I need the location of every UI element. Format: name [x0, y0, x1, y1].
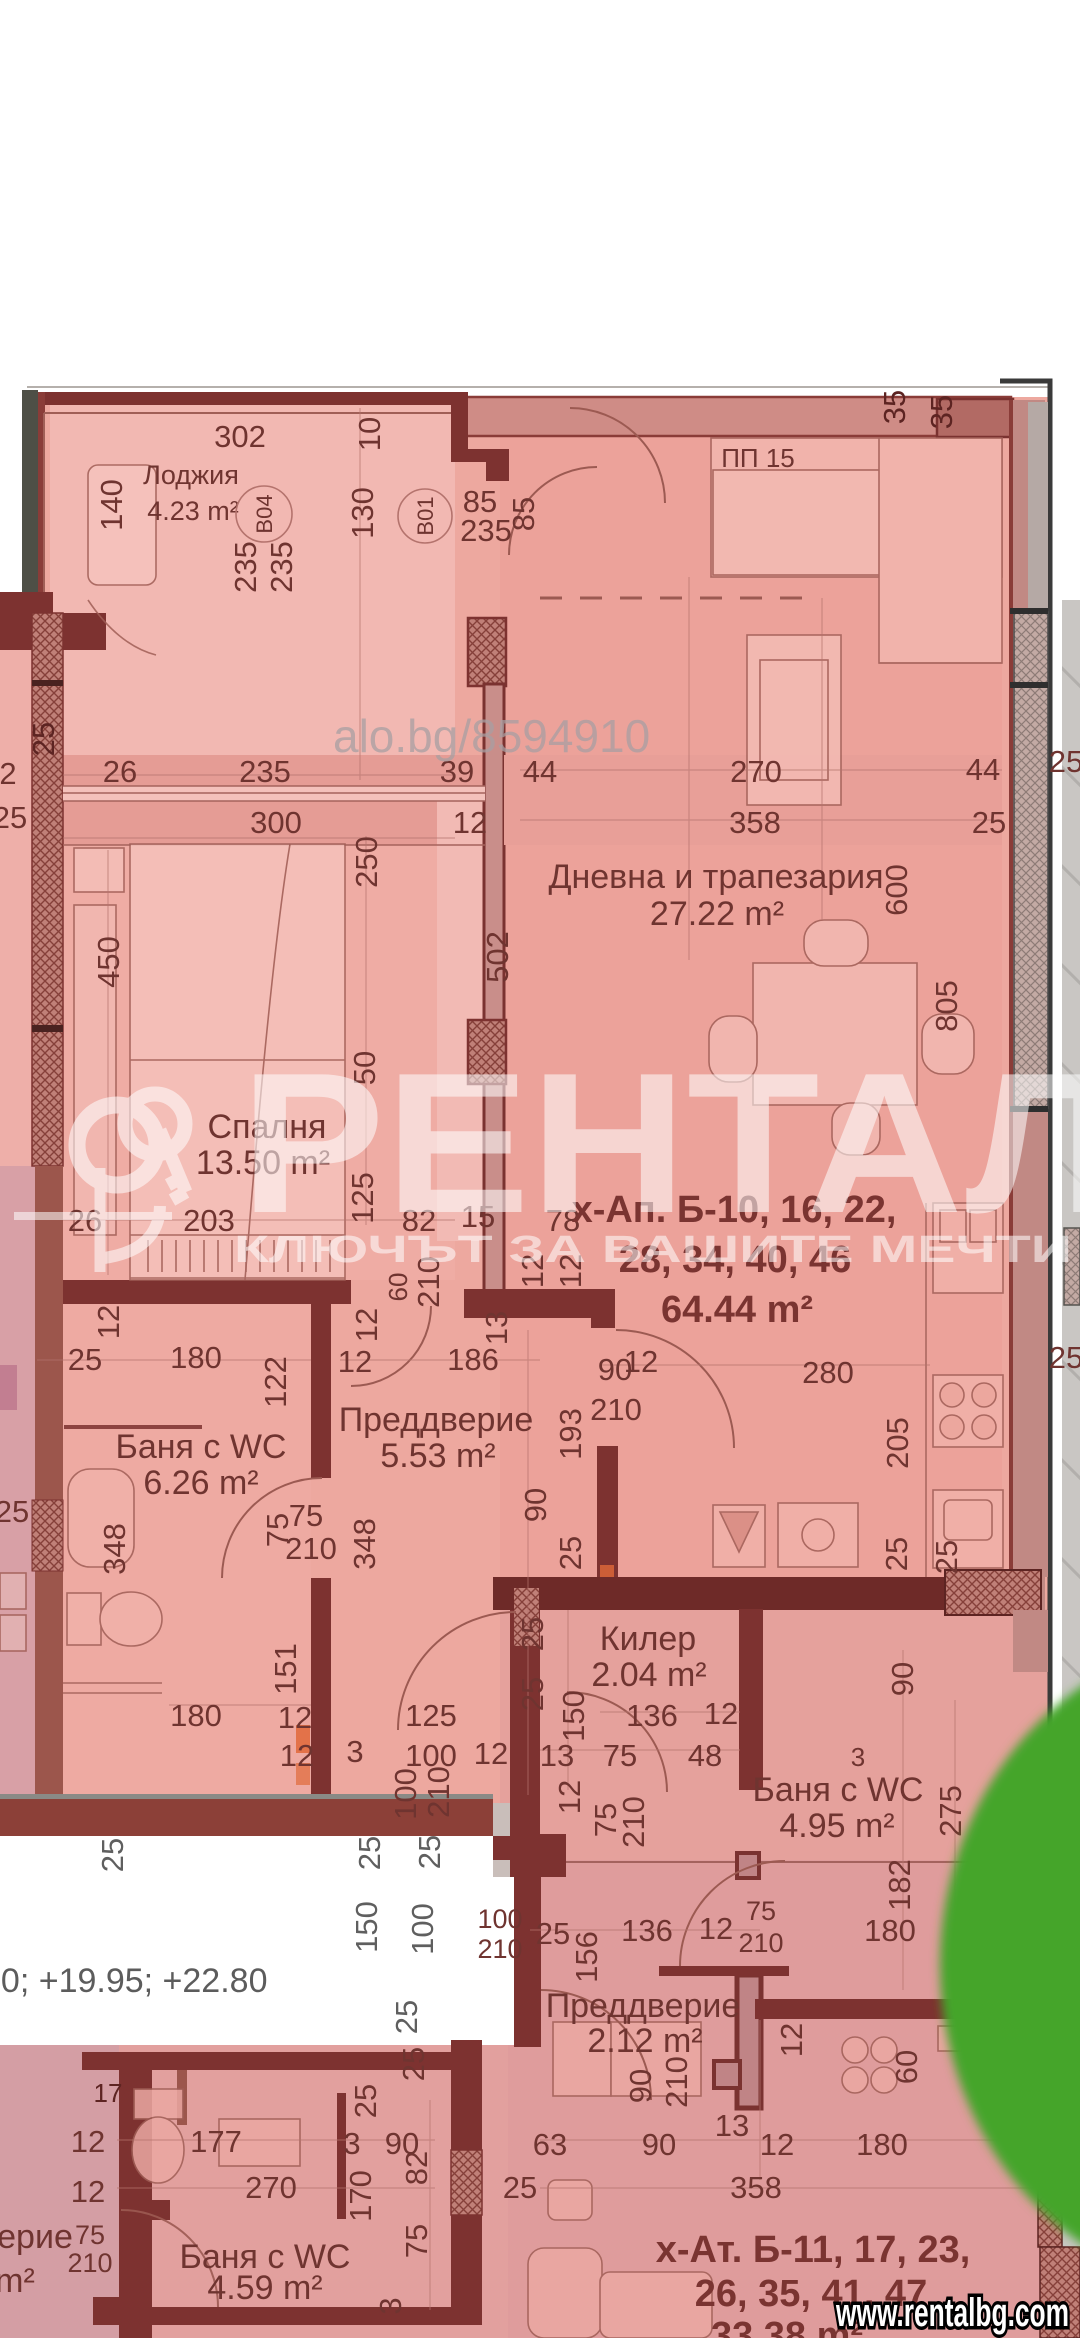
- svg-text:25: 25: [515, 1617, 550, 1651]
- svg-text:186: 186: [447, 1342, 499, 1377]
- svg-text:502: 502: [480, 931, 515, 983]
- svg-text:450: 450: [91, 936, 126, 988]
- svg-text:12: 12: [278, 1700, 312, 1735]
- svg-text:90: 90: [885, 1662, 920, 1696]
- svg-text:75: 75: [399, 2224, 434, 2258]
- svg-text:3: 3: [373, 2297, 408, 2314]
- svg-text:270: 270: [730, 754, 782, 789]
- svg-text:85: 85: [506, 497, 541, 531]
- svg-text:210: 210: [659, 2056, 694, 2108]
- svg-text:270: 270: [245, 2170, 297, 2205]
- svg-text:2: 2: [0, 756, 17, 791]
- svg-text:25: 25: [389, 2000, 424, 2034]
- svg-text:25: 25: [412, 1835, 447, 1869]
- svg-text:140: 140: [94, 479, 129, 531]
- svg-text:Килер: Килер: [600, 1620, 696, 1658]
- svg-text:25: 25: [0, 1494, 29, 1529]
- svg-text:90: 90: [623, 2069, 658, 2103]
- svg-text:27.22 m²: 27.22 m²: [650, 895, 784, 933]
- svg-text:210: 210: [616, 1796, 651, 1848]
- svg-text:25: 25: [352, 1836, 387, 1870]
- svg-text:Преддверие: Преддверие: [546, 1987, 741, 2025]
- svg-text:12: 12: [453, 805, 487, 840]
- svg-text:10; +19.95; +22.80: 10; +19.95; +22.80: [0, 1962, 267, 2000]
- svg-text:125: 125: [405, 1698, 457, 1733]
- svg-text:25: 25: [503, 2170, 537, 2205]
- svg-text:13: 13: [715, 2108, 749, 2143]
- svg-text:25: 25: [515, 1677, 550, 1711]
- svg-text:12: 12: [704, 1696, 738, 1731]
- svg-text:100: 100: [477, 1904, 522, 1934]
- svg-text:12: 12: [760, 2127, 794, 2162]
- svg-text:302: 302: [214, 419, 266, 454]
- svg-text:75: 75: [75, 2220, 105, 2250]
- svg-text:60: 60: [383, 1273, 413, 1302]
- svg-text:12: 12: [71, 2174, 105, 2209]
- svg-text:100: 100: [405, 1903, 440, 1955]
- svg-text:25: 25: [929, 1540, 964, 1574]
- svg-text:25: 25: [0, 800, 27, 835]
- svg-text:3: 3: [343, 2126, 360, 2161]
- svg-text:Баня с WC: Баня с WC: [753, 1771, 924, 1809]
- svg-text:6.26 m²: 6.26 m²: [143, 1464, 258, 1502]
- svg-text:44: 44: [966, 752, 1000, 787]
- svg-text:3: 3: [346, 1734, 363, 1769]
- svg-text:2.04 m²: 2.04 m²: [591, 1656, 706, 1694]
- svg-text:182: 182: [882, 1859, 917, 1911]
- svg-text:600: 600: [879, 864, 914, 916]
- svg-text:348: 348: [347, 1518, 382, 1570]
- svg-text:12: 12: [349, 1308, 384, 1342]
- svg-text:275: 275: [933, 1785, 968, 1837]
- svg-text:4.59 m²: 4.59 m²: [207, 2269, 322, 2307]
- svg-text:5.53 m²: 5.53 m²: [380, 1437, 495, 1475]
- svg-text:90: 90: [518, 1488, 553, 1522]
- svg-text:210: 210: [590, 1392, 642, 1427]
- svg-text:156: 156: [569, 1931, 604, 1983]
- svg-text:12: 12: [474, 1736, 508, 1771]
- svg-text:25: 25: [972, 805, 1006, 840]
- svg-text:210: 210: [67, 2248, 112, 2278]
- svg-text:358: 358: [729, 805, 781, 840]
- svg-text:25: 25: [396, 2047, 431, 2081]
- svg-text:х-Ат. Б-11, 17, 23,: х-Ат. Б-11, 17, 23,: [656, 2229, 971, 2271]
- svg-text:130: 130: [345, 487, 380, 539]
- svg-text:ПП 15: ПП 15: [721, 443, 795, 473]
- svg-text:12: 12: [91, 1305, 126, 1339]
- svg-text:235: 235: [460, 513, 512, 548]
- svg-text:13: 13: [540, 1738, 574, 1773]
- svg-text:150: 150: [349, 1901, 384, 1953]
- svg-text:82: 82: [399, 2151, 434, 2185]
- svg-text:25: 25: [348, 2084, 383, 2118]
- svg-text:75: 75: [260, 1513, 295, 1547]
- svg-text:180: 180: [170, 1340, 222, 1375]
- svg-text:170: 170: [343, 2170, 378, 2222]
- svg-text:235: 235: [239, 754, 291, 789]
- svg-text:m²: m²: [0, 2262, 35, 2300]
- svg-text:12: 12: [280, 1738, 314, 1773]
- svg-text:48: 48: [688, 1738, 722, 1773]
- svg-text:2.12 m²: 2.12 m²: [587, 2022, 702, 2060]
- svg-text:180: 180: [864, 1913, 916, 1948]
- svg-text:348: 348: [97, 1523, 132, 1575]
- svg-text:12: 12: [71, 2124, 105, 2159]
- svg-text:В04: В04: [252, 494, 277, 533]
- svg-text:100: 100: [388, 1768, 423, 1820]
- svg-text:12: 12: [552, 1780, 587, 1814]
- svg-text:235: 235: [264, 541, 299, 593]
- svg-text:ерие: ерие: [0, 2218, 73, 2256]
- svg-text:122: 122: [258, 1356, 293, 1408]
- svg-text:280: 280: [802, 1355, 854, 1390]
- svg-text:25: 25: [879, 1537, 914, 1571]
- svg-text:25: 25: [68, 1342, 102, 1377]
- svg-text:Преддверие: Преддверие: [339, 1401, 534, 1439]
- svg-text:35: 35: [877, 390, 912, 424]
- svg-text:90: 90: [642, 2127, 676, 2162]
- svg-text:210: 210: [421, 1766, 456, 1818]
- svg-text:25: 25: [95, 1838, 130, 1872]
- svg-text:13: 13: [479, 1311, 514, 1345]
- svg-text:64.44 m²: 64.44 m²: [661, 1289, 813, 1331]
- svg-text:180: 180: [170, 1698, 222, 1733]
- svg-text:12: 12: [774, 2023, 809, 2057]
- svg-text:805: 805: [929, 980, 964, 1032]
- svg-text:25: 25: [1049, 1340, 1080, 1375]
- svg-text:РЕНТАЛ: РЕНТАЛ: [240, 1032, 1080, 1255]
- svg-text:12: 12: [624, 1344, 658, 1379]
- svg-text:180: 180: [856, 2127, 908, 2162]
- svg-text:75: 75: [746, 1896, 776, 1926]
- svg-text:235: 235: [228, 541, 263, 593]
- svg-text:25: 25: [26, 722, 61, 756]
- svg-text:4.23 m²: 4.23 m²: [147, 496, 239, 526]
- svg-text:60: 60: [889, 2050, 924, 2084]
- svg-text:63: 63: [533, 2127, 567, 2162]
- svg-text:250: 250: [349, 836, 384, 888]
- svg-text:203: 203: [183, 1203, 235, 1238]
- svg-text:177: 177: [190, 2124, 242, 2159]
- svg-text:193: 193: [553, 1408, 588, 1460]
- svg-text:25: 25: [1049, 744, 1080, 779]
- svg-text:26: 26: [103, 754, 137, 789]
- svg-text:Баня с WC: Баня с WC: [116, 1428, 287, 1466]
- svg-text:В01: В01: [413, 496, 438, 535]
- svg-text:358: 358: [730, 2170, 782, 2205]
- svg-text:25: 25: [536, 1916, 570, 1951]
- svg-text:10: 10: [352, 417, 387, 451]
- svg-text:35: 35: [924, 395, 959, 429]
- svg-text:205: 205: [880, 1417, 915, 1469]
- svg-text:3: 3: [851, 1742, 865, 1772]
- svg-text:150: 150: [556, 1690, 591, 1742]
- svg-text:210: 210: [738, 1928, 783, 1958]
- svg-text:alo.bg/8594910: alo.bg/8594910: [333, 710, 650, 762]
- svg-text:300: 300: [250, 805, 302, 840]
- svg-text:75: 75: [603, 1738, 637, 1773]
- svg-text:12: 12: [699, 1911, 733, 1946]
- svg-text:Дневна и трапезария: Дневна и трапезария: [548, 858, 883, 896]
- svg-text:210: 210: [477, 1934, 522, 1964]
- svg-text:www.rentalbg.com: www.rentalbg.com: [835, 2291, 1069, 2335]
- svg-text:25: 25: [553, 1536, 588, 1570]
- svg-text:Лоджия: Лоджия: [143, 460, 239, 490]
- svg-text:КЛЮЧЪТ ЗА ВАШИТЕ МЕЧТИ: КЛЮЧЪТ ЗА ВАШИТЕ МЕЧТИ: [234, 1229, 1072, 1271]
- svg-text:136: 136: [626, 1698, 678, 1733]
- svg-text:136: 136: [621, 1913, 673, 1948]
- svg-text:17: 17: [94, 2078, 123, 2108]
- svg-text:151: 151: [268, 1643, 303, 1695]
- svg-text:4.95 m²: 4.95 m²: [779, 1807, 894, 1845]
- svg-text:12: 12: [338, 1344, 372, 1379]
